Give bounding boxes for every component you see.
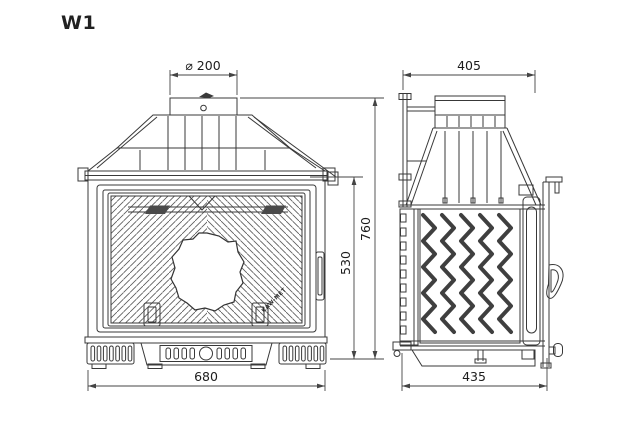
side-body <box>400 177 563 367</box>
dim-total-height: 760 <box>359 201 373 257</box>
door-handle-front <box>316 252 324 300</box>
dim-base-depth: 435 <box>446 370 502 384</box>
front-view <box>78 93 338 369</box>
dim-body-height: 530 <box>339 235 353 291</box>
front-hood <box>78 115 338 185</box>
left-vent-slats <box>91 346 132 361</box>
side-front-bracket <box>399 93 435 207</box>
heat-fins <box>423 215 511 332</box>
air-control-panel <box>141 343 272 365</box>
flue-collar <box>170 93 237 116</box>
side-hood <box>406 115 541 205</box>
latch-knob <box>549 344 563 357</box>
dim-depth-top: 405 <box>441 59 497 73</box>
door-edge-profile <box>523 197 540 345</box>
dim-flue-diameter: ⌀ 200 <box>175 59 231 73</box>
side-view <box>393 93 563 368</box>
front-body <box>88 180 325 337</box>
hinge-pin <box>546 177 562 193</box>
front-base <box>85 337 327 369</box>
dim-front-width: 680 <box>178 370 234 384</box>
side-flue-collar <box>435 96 505 115</box>
drawing-svg <box>0 0 640 429</box>
flame-cutout <box>171 233 244 311</box>
technical-drawing-canvas: W1 <box>0 0 640 429</box>
air-control-knob <box>200 347 213 360</box>
damper-lever <box>199 93 214 99</box>
right-vent-slats <box>283 346 324 361</box>
